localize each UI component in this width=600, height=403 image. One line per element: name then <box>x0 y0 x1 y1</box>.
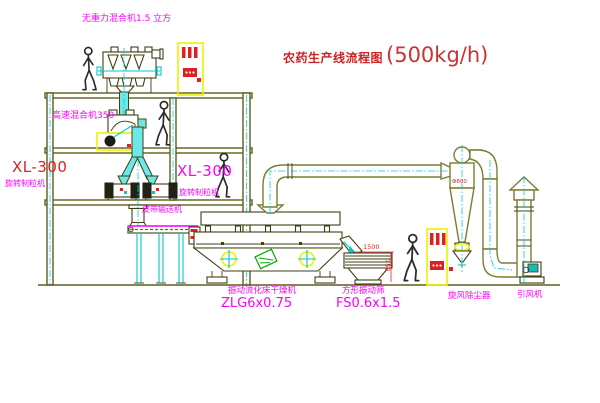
label-gravity-mixer: 无重力混合机1.5 立方 <box>82 15 171 24</box>
cyclone-drawing <box>449 145 482 272</box>
belt-conveyor-drawing <box>128 226 198 283</box>
control-cabinet-top <box>178 43 203 95</box>
label-xl300-left: XL-300 <box>12 160 67 175</box>
downpipe-duct <box>470 150 523 277</box>
fluid-bed-dryer-drawing <box>189 212 362 283</box>
label-fluid-bed-model: ZLG6x0.75 <box>221 297 292 310</box>
title-capacity: (500kg/h) <box>386 43 488 67</box>
label-granulator-left: 旋转制粒机 <box>5 180 45 188</box>
label-square-sieve: 方形振动筛 <box>342 287 385 296</box>
title-chinese: 农药生产线流程图 <box>283 49 383 66</box>
process-flow-diagram: 农药生产线流程图 (500kg/h) 无重力混合机1.5 立方 高速混合机350… <box>0 0 600 403</box>
dimension-sieve-height: 750 <box>384 259 391 271</box>
label-xl300-right: XL-300 <box>177 164 232 179</box>
fan-motor-icon <box>528 264 538 272</box>
dimension-sieve-length: 1500 <box>363 244 380 251</box>
label-granulator-right: 旋转制粒机 <box>179 189 219 197</box>
label-induced-fan: 引风机 <box>517 291 543 300</box>
label-cyclone: 旋风除尘器 <box>448 292 491 301</box>
granulator-left-drawing <box>105 176 139 200</box>
exhaust-duct <box>258 163 462 213</box>
control-cabinet-right <box>427 229 453 285</box>
label-fluid-bed-dryer: 振动流化床干燥机 <box>228 287 296 296</box>
person-figure <box>83 47 96 89</box>
dimension-cyclone-diameter: Φ800 <box>452 180 467 186</box>
label-high-speed-mixer: 高速混合机350 <box>52 112 114 121</box>
label-square-sieve-model: FS0.6x1.5 <box>336 297 401 310</box>
page-title: 农药生产线流程图 (500kg/h) <box>283 43 488 67</box>
person-figure <box>404 235 418 281</box>
person-figure <box>156 102 170 145</box>
label-belt-conveyor: 皮带输送机 <box>142 206 182 214</box>
